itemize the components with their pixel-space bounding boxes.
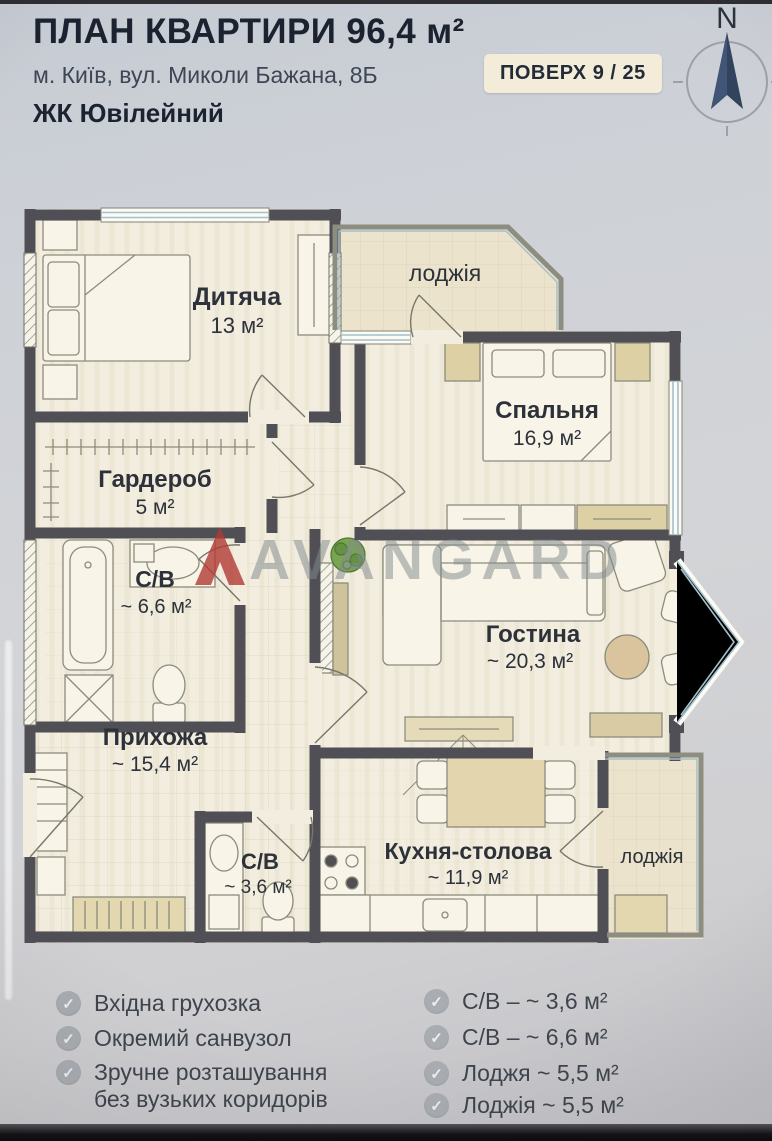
feature-text: Вхідна грухозка bbox=[94, 990, 261, 1017]
floor-plan: AVANGARD Дитяча 13 м² лоджія Спальня 16,… bbox=[15, 195, 760, 970]
room-label-prykhozha: Прихожа bbox=[103, 724, 208, 751]
room-area-harderob: 5 м² bbox=[136, 496, 175, 519]
feature-item: ✓ Зручне розташування без вузьких коридо… bbox=[56, 1059, 328, 1112]
room-area-spalnia: 16,9 м² bbox=[513, 427, 581, 450]
room-label-kukhnia: Кухня-столова bbox=[384, 838, 551, 864]
feature-text: С/В – ~ 6,6 м² bbox=[462, 1024, 608, 1051]
check-icon: ✓ bbox=[424, 1093, 449, 1118]
room-area-dytiacha: 13 м² bbox=[210, 313, 263, 338]
feature-item: ✓ Вхідна грухозка bbox=[56, 990, 261, 1017]
loggia-bench-icon bbox=[615, 895, 667, 933]
feature-text: Окремий санвузол bbox=[94, 1025, 292, 1052]
feature-item: ✓ Лоджя ~ 5,5 м² bbox=[424, 1060, 619, 1087]
toilet-icon bbox=[153, 665, 185, 723]
rug-icon bbox=[605, 635, 649, 679]
shoe-cabinet-icon bbox=[73, 897, 185, 933]
room-area-hostyna: ~ 20,3 м² bbox=[487, 650, 573, 673]
check-icon: ✓ bbox=[56, 991, 81, 1016]
sv2-sink-icon bbox=[210, 835, 238, 871]
room-label-harderob: Гардероб bbox=[98, 466, 211, 493]
compass-icon: N bbox=[660, 2, 772, 144]
complex-name: ЖК Ювілейний bbox=[33, 98, 224, 129]
paper-edge-highlight bbox=[5, 640, 12, 1000]
room-label-dytiacha: Дитяча bbox=[193, 283, 283, 311]
kitchen-counter-icon bbox=[318, 895, 600, 935]
feature-text-line2: без вузьких коридорів bbox=[94, 1086, 328, 1113]
floor-badge: ПОВЕРХ 9 / 25 bbox=[484, 54, 662, 93]
feature-text: Лоджія ~ 5,5 м² bbox=[462, 1092, 624, 1119]
feature-text: С/В – ~ 3,6 м² bbox=[462, 988, 608, 1015]
room-area-kukhnia: ~ 11,9 м² bbox=[428, 867, 509, 889]
check-icon: ✓ bbox=[424, 1061, 449, 1086]
room-area-prykhozha: ~ 15,4 м² bbox=[112, 753, 198, 776]
washer-icon bbox=[65, 675, 113, 723]
feature-text: Зручне розташування без вузьких коридорі… bbox=[94, 1059, 328, 1112]
feature-text: Лоджя ~ 5,5 м² bbox=[462, 1060, 619, 1087]
photo-bottom-edge bbox=[0, 1124, 772, 1141]
hall-wardrobe-icon bbox=[35, 753, 67, 851]
room-label-sv-big: С/В bbox=[135, 566, 175, 592]
room-label-loggia-bottom: лоджія bbox=[621, 846, 684, 868]
check-icon: ✓ bbox=[56, 1060, 81, 1085]
photo-top-edge bbox=[0, 0, 772, 4]
check-icon: ✓ bbox=[424, 989, 449, 1014]
hall-bench-icon bbox=[37, 857, 65, 895]
feature-item: ✓ С/В – ~ 3,6 м² bbox=[424, 988, 608, 1015]
stove-icon bbox=[318, 847, 365, 895]
room-label-hostyna: Гостина bbox=[486, 621, 581, 648]
room-area-sv-big: ~ 6,6 м² bbox=[120, 596, 191, 618]
feature-item: ✓ Окремий санвузол bbox=[56, 1025, 292, 1052]
console-icon bbox=[590, 713, 662, 737]
room-label-loggia-top: лоджія bbox=[409, 260, 481, 286]
check-icon: ✓ bbox=[424, 1025, 449, 1050]
feature-item: ✓ С/В – ~ 6,6 м² bbox=[424, 1024, 608, 1051]
room-area-sv-small: ~ 3,6 м² bbox=[224, 877, 291, 898]
room-label-sv-small: С/В bbox=[241, 849, 279, 874]
page-title: ПЛАН КВАРТИРИ 96,4 м² bbox=[33, 12, 465, 52]
watermark: AVANGARD bbox=[195, 527, 626, 592]
address-subtitle: м. Київ, вул. Миколи Бажана, 8Б bbox=[33, 62, 378, 89]
check-icon: ✓ bbox=[56, 1026, 81, 1051]
watermark-text: AVANGARD bbox=[249, 528, 626, 592]
feature-item: ✓ Лоджія ~ 5,5 м² bbox=[424, 1092, 624, 1119]
compass-north-label: N bbox=[716, 2, 738, 35]
bathtub-icon bbox=[63, 540, 113, 670]
room-label-spalnia: Спальня bbox=[495, 397, 599, 424]
feature-text-line1: Зручне розташування bbox=[94, 1059, 328, 1086]
floor-plan-poster: ПЛАН КВАРТИРИ 96,4 м² м. Київ, вул. Мико… bbox=[0, 0, 772, 1141]
